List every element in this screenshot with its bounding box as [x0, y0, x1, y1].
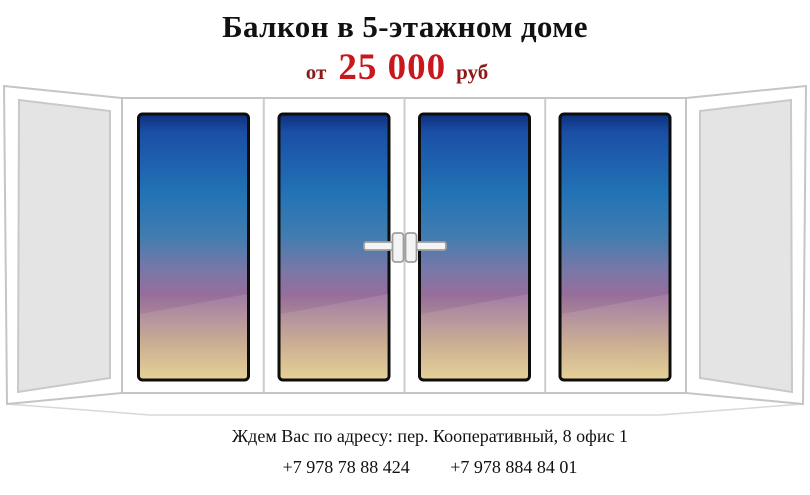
side-panel-right-glass — [700, 100, 792, 392]
ad-banner: Балкон в 5-этажном доме от 25 000 руб — [0, 0, 810, 495]
address-line: Ждем Вас по адресу: пер. Кооперативный, … — [25, 426, 810, 447]
phone-number-1: +7 978 78 88 424 — [283, 457, 410, 477]
phone-line: +7 978 78 88 424 +7 978 884 84 01 — [25, 457, 810, 478]
side-panel-left-glass — [18, 100, 110, 392]
phone-number-2: +7 978 884 84 01 — [450, 457, 577, 477]
balcony-illustration — [0, 0, 810, 495]
window-handle-left-bar — [364, 242, 394, 250]
window-handle-right-bar — [416, 242, 446, 250]
sill-line — [7, 404, 803, 415]
side-panel-right — [686, 86, 806, 404]
window-handle-left-plate — [393, 233, 404, 262]
window-handle-right-plate — [406, 233, 417, 262]
side-panel-left — [4, 86, 122, 404]
